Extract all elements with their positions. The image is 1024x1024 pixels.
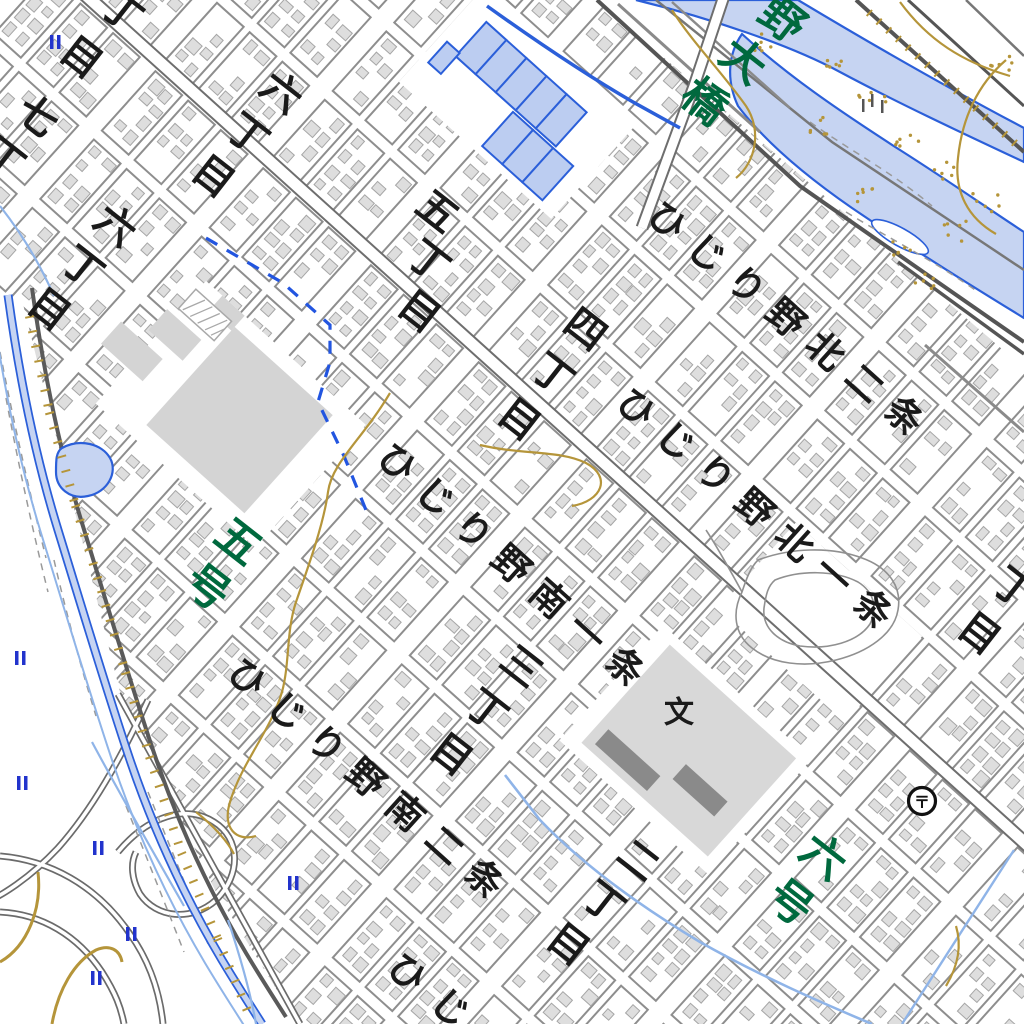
gravel-dot: [821, 116, 824, 119]
gravel-dot: [856, 200, 859, 203]
gravel-dot: [826, 59, 829, 62]
gravel-dot: [930, 287, 933, 290]
gravel-dot: [917, 140, 920, 143]
gravel-dot: [945, 161, 948, 164]
gravel-dot: [997, 204, 1000, 207]
gravel-dot: [868, 99, 871, 102]
gravel-dot: [862, 191, 865, 194]
pond: [56, 443, 113, 497]
gravel-dot: [897, 251, 900, 254]
gravel-dot: [903, 246, 906, 249]
gravel-dot: [769, 45, 772, 48]
gravel-dot: [871, 187, 874, 190]
gravel-dot: [952, 166, 955, 169]
gravel-dot: [914, 281, 917, 284]
pylon-mark: [871, 94, 874, 107]
gravel-dot: [960, 239, 963, 242]
gravel-dot: [947, 233, 950, 236]
gravel-dot: [856, 192, 859, 195]
gravel-dot: [838, 64, 841, 67]
gravel-dot: [1010, 61, 1013, 64]
gravel-dot: [892, 253, 895, 256]
pylon-mark: [881, 100, 884, 113]
gravel-dot: [941, 177, 944, 180]
gravel-dot: [946, 222, 949, 225]
gravel-dot: [898, 138, 901, 141]
gravel-dot: [975, 200, 978, 203]
gravel-dot: [958, 224, 961, 227]
gravel-dot: [943, 223, 946, 226]
gravel-dot: [891, 240, 894, 243]
gravel-dot: [895, 140, 898, 143]
gravel-dot: [857, 94, 860, 97]
gravel-dot: [825, 132, 828, 135]
gravel-dot: [825, 64, 828, 67]
gravel-dot: [819, 119, 822, 122]
gravel-dot: [964, 220, 967, 223]
gravel-dot: [996, 193, 999, 196]
gravel-dot: [971, 192, 974, 195]
gravel-dot: [933, 168, 936, 171]
gravel-dot: [1008, 55, 1011, 58]
post-office-symbol: 〒: [909, 788, 936, 815]
gravel-dot: [909, 134, 912, 137]
gravel-dot: [828, 65, 831, 68]
gravel-dot: [923, 273, 926, 276]
map-canvas[interactable]: 文〒 野大橋ひじり野北二条ひじり野北一条ひじり野南一条ひじり野南二条ひじ五丁目四…: [0, 0, 1024, 1024]
gravel-dot: [884, 100, 887, 103]
svg-text:〒: 〒: [914, 793, 930, 812]
gravel-dot: [998, 63, 1001, 66]
pylon-mark: [862, 99, 865, 112]
gravel-dot: [932, 284, 935, 287]
gravel-dot: [840, 60, 843, 63]
gravel-dot: [869, 91, 872, 94]
gravel-dot: [932, 277, 935, 280]
gravel-dot: [950, 174, 953, 177]
topographic-map: 文〒 野大橋ひじり野北二条ひじり野北一条ひじり野南一条ひじり野南二条ひじ五丁目四…: [0, 0, 1024, 1024]
gravel-dot: [940, 172, 943, 175]
gravel-dot: [898, 144, 901, 147]
gravel-dot: [922, 279, 925, 282]
gravel-dot: [1007, 68, 1010, 71]
gravel-dot: [990, 210, 993, 213]
gravel-dot: [984, 205, 987, 208]
gravel-dot: [990, 64, 993, 67]
gravel-dot: [809, 129, 812, 132]
gravel-dot: [834, 63, 837, 66]
gravel-dot: [883, 95, 886, 98]
school-symbol: 文: [664, 696, 694, 731]
gravel-dot: [909, 249, 912, 252]
